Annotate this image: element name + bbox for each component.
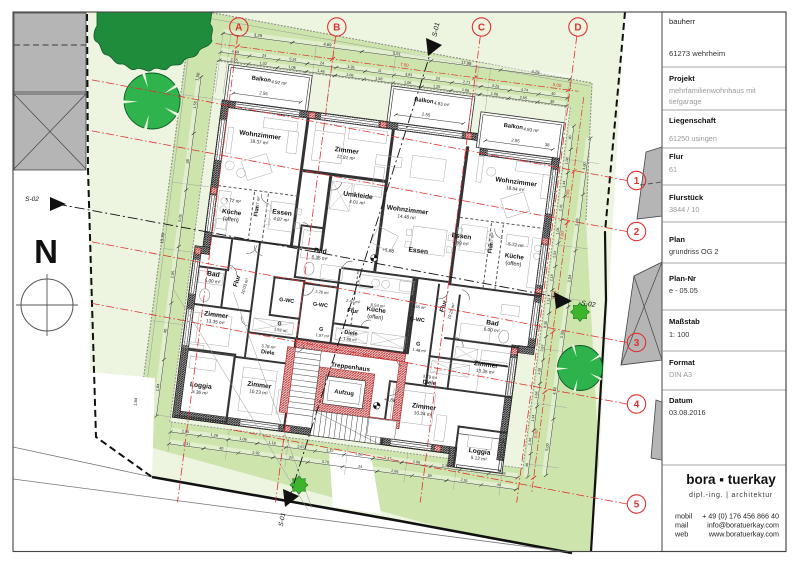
svg-text:61: 61 bbox=[669, 165, 677, 174]
svg-text:A: A bbox=[235, 23, 242, 34]
svg-text:1: 1 bbox=[634, 176, 640, 187]
svg-text:B: B bbox=[333, 23, 340, 34]
svg-text:1: 100: 1: 100 bbox=[669, 330, 689, 339]
svg-text:3: 3 bbox=[634, 338, 640, 349]
svg-text:4: 4 bbox=[634, 400, 640, 411]
svg-text:Flur: Flur bbox=[669, 152, 683, 161]
svg-text:S-02: S-02 bbox=[25, 196, 39, 203]
svg-text:Maßstab: Maßstab bbox=[669, 317, 700, 326]
svg-text:38: 38 bbox=[550, 100, 555, 105]
svg-text:24: 24 bbox=[262, 54, 267, 59]
svg-text:mail: mail bbox=[675, 521, 689, 530]
svg-text:2: 2 bbox=[634, 227, 640, 238]
svg-text:bauherr: bauherr bbox=[669, 17, 696, 26]
svg-text:tiefgarage: tiefgarage bbox=[669, 97, 701, 106]
svg-text:mehrfamilienwohnhaus mit: mehrfamilienwohnhaus mit bbox=[669, 86, 756, 95]
svg-text:24: 24 bbox=[435, 76, 440, 81]
svg-text:40: 40 bbox=[551, 92, 556, 97]
svg-text:11: 11 bbox=[378, 69, 382, 73]
svg-text:Plan-Nr: Plan-Nr bbox=[669, 274, 696, 283]
svg-text:40: 40 bbox=[219, 446, 224, 451]
svg-text:38: 38 bbox=[185, 159, 191, 164]
svg-text:info@boratuerkay.com: info@boratuerkay.com bbox=[707, 521, 779, 530]
svg-text:+ 49 (0) 176 456 866 40: + 49 (0) 176 456 866 40 bbox=[702, 512, 779, 521]
svg-text:5.02: 5.02 bbox=[177, 214, 183, 222]
svg-text:N: N bbox=[34, 233, 58, 270]
svg-text:Flurstück: Flurstück bbox=[669, 193, 704, 202]
svg-text:Projekt: Projekt bbox=[669, 74, 695, 83]
svg-text:61273 wehrheim: 61273 wehrheim bbox=[669, 49, 725, 58]
svg-text:bora ▪ tuerkay: bora ▪ tuerkay bbox=[686, 472, 776, 487]
svg-text:Format: Format bbox=[669, 358, 695, 367]
svg-text:38: 38 bbox=[427, 474, 432, 479]
svg-text:dipl.-ing. | architektur: dipl.-ing. | architektur bbox=[689, 492, 773, 499]
svg-text:C: C bbox=[478, 23, 485, 34]
svg-text:grundriss OG 2: grundriss OG 2 bbox=[669, 247, 718, 256]
svg-text:D: D bbox=[574, 23, 581, 34]
svg-text:40: 40 bbox=[525, 463, 529, 467]
svg-text:24: 24 bbox=[320, 61, 325, 66]
svg-text:e - 05.05: e - 05.05 bbox=[669, 286, 698, 295]
svg-text:3844 / 10: 3844 / 10 bbox=[669, 205, 699, 214]
svg-text:DIN A3: DIN A3 bbox=[669, 370, 692, 379]
svg-text:24: 24 bbox=[288, 455, 293, 460]
svg-text:www.boratuerkay.com: www.boratuerkay.com bbox=[708, 530, 779, 539]
svg-text:2.55: 2.55 bbox=[169, 270, 175, 278]
svg-text:Datum: Datum bbox=[669, 396, 693, 405]
svg-text:1.84: 1.84 bbox=[133, 397, 139, 406]
svg-text:40: 40 bbox=[497, 483, 502, 488]
svg-text:24: 24 bbox=[358, 465, 363, 470]
svg-text:03.08.2016: 03.08.2016 bbox=[669, 408, 706, 417]
svg-text:Liegenschaft: Liegenschaft bbox=[669, 116, 716, 125]
svg-text:40: 40 bbox=[568, 135, 572, 139]
svg-text:Plan: Plan bbox=[669, 235, 685, 244]
svg-text:mobil: mobil bbox=[675, 512, 693, 521]
svg-text:61250 usingen: 61250 usingen bbox=[669, 134, 717, 143]
svg-text:web: web bbox=[674, 530, 688, 539]
svg-text:5: 5 bbox=[634, 500, 640, 511]
